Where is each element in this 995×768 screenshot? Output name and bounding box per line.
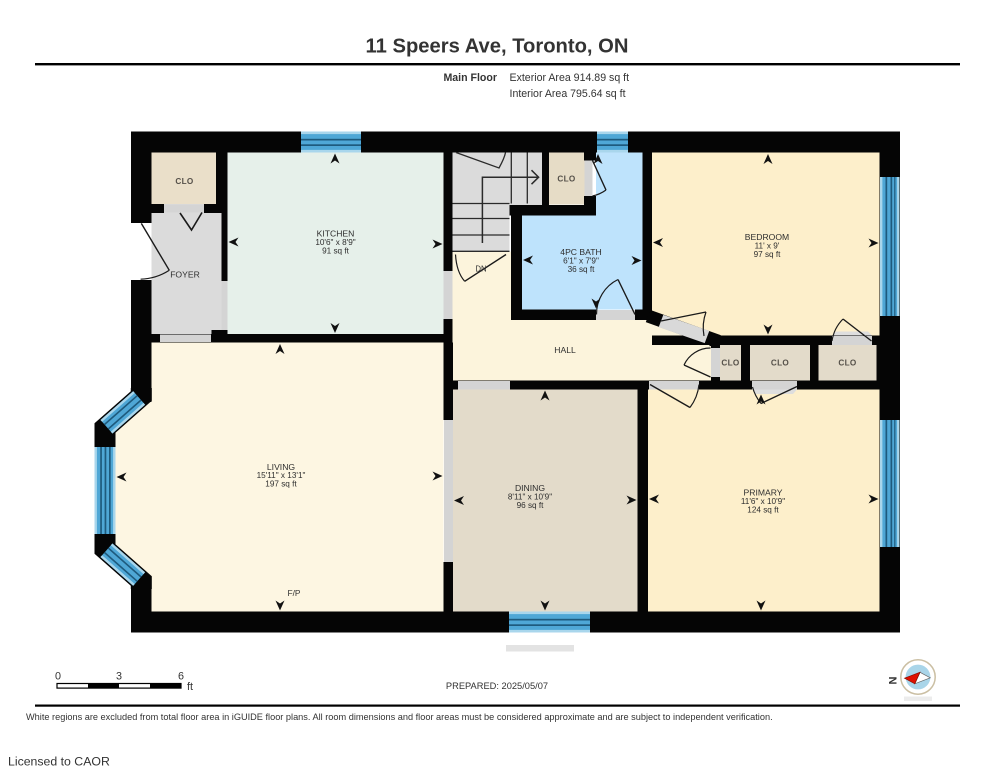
svg-text:White regions are excluded fro: White regions are excluded from total fl… [26,712,773,722]
svg-text:197 sq ft: 197 sq ft [265,480,297,489]
svg-text:124 sq ft: 124 sq ft [747,505,779,514]
svg-text:36 sq ft: 36 sq ft [568,265,596,274]
svg-text:Interior Area 795.64 sq ft: Interior Area 795.64 sq ft [510,88,626,100]
svg-text:CLO: CLO [771,359,790,368]
svg-text:CLO: CLO [175,177,194,186]
svg-text:0: 0 [55,671,61,683]
svg-text:FOYER: FOYER [170,270,200,280]
svg-text:96 sq ft: 96 sq ft [517,501,545,510]
svg-text:8'11" x 10'9": 8'11" x 10'9" [508,493,552,502]
svg-text:N: N [888,676,900,684]
svg-text:PRIMARY: PRIMARY [744,488,783,498]
svg-text:91 sq ft: 91 sq ft [322,246,350,255]
svg-text:Main Floor: Main Floor [443,72,497,84]
svg-text:3: 3 [116,671,122,683]
svg-text:PREPARED: 2025/05/07: PREPARED: 2025/05/07 [446,681,548,691]
svg-text:CLO: CLO [557,175,576,184]
svg-text:Exterior Area 914.89 sq ft: Exterior Area 914.89 sq ft [510,72,630,84]
svg-text:Licensed to CAOR: Licensed to CAOR [8,755,110,768]
svg-text:ft: ft [187,681,193,693]
svg-text:F/P: F/P [287,588,300,598]
svg-text:6: 6 [178,671,184,683]
svg-text:97 sq ft: 97 sq ft [754,250,782,259]
svg-text:CLO: CLO [838,359,857,368]
svg-text:DINING: DINING [515,483,545,493]
svg-text:11 Speers Ave, Toronto, ON: 11 Speers Ave, Toronto, ON [366,36,629,58]
svg-text:DN: DN [475,265,486,274]
svg-text:CLO: CLO [721,359,740,368]
svg-text:HALL: HALL [554,345,576,355]
svg-text:4PC BATH: 4PC BATH [560,247,601,257]
